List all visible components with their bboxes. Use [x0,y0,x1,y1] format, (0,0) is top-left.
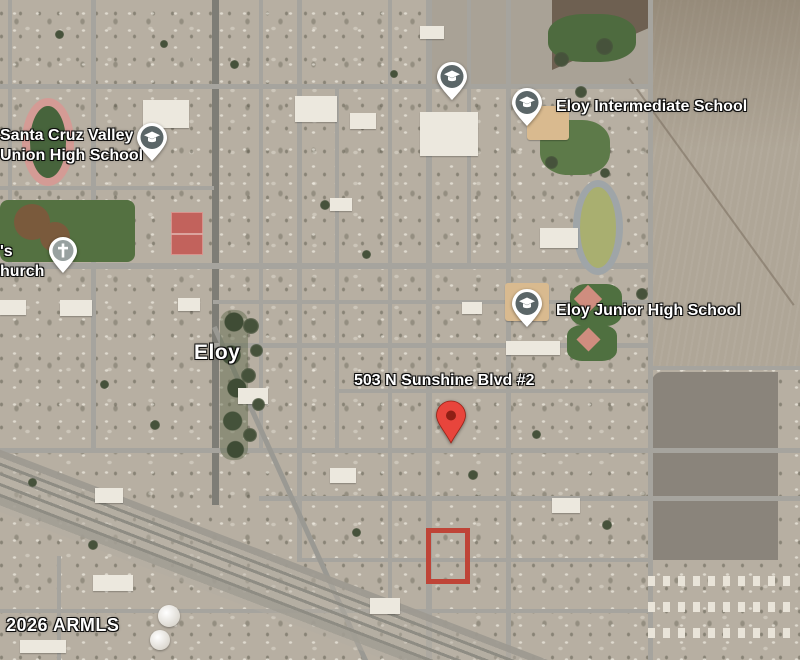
trailer-row [648,576,794,586]
tree [230,60,239,69]
building [420,112,478,156]
tree [602,520,612,530]
church-pin-icon[interactable] [48,236,78,274]
building [178,298,200,311]
tree [55,30,64,39]
building [350,113,376,129]
tree [252,398,265,411]
tree [28,478,37,487]
street [388,0,392,612]
satellite-map[interactable]: Santa Cruz ValleyUnion High School Eloy … [0,0,800,660]
high-school-label-line1: Santa Cruz Valley [0,126,133,146]
street [0,448,800,453]
street [0,263,652,269]
tree [545,156,558,169]
high-school-label-line2: Union High School [0,146,143,166]
trailer-row [648,602,794,612]
building [506,341,560,355]
street [297,558,652,562]
tree [362,250,371,259]
tree [390,70,398,78]
tree [88,540,98,550]
school-pin-icon[interactable] [511,288,543,328]
building [93,575,133,591]
junior-high-school-label: Eloy Junior High School [556,301,741,321]
building [60,300,92,316]
red-roof-apartments [426,528,470,584]
intermediate-school-label: Eloy Intermediate School [556,97,747,117]
trailer-row [648,628,794,638]
tree [241,368,256,383]
plowed-field-shading [652,0,800,150]
main-street [212,0,219,505]
tree [352,528,361,537]
building [420,26,444,39]
tree [160,40,168,48]
tree [554,52,569,67]
building [330,198,352,211]
building [540,228,578,248]
trailer-park [642,566,800,660]
church-label-line2: hurch [0,262,44,282]
tree [600,168,610,178]
building [330,468,356,483]
street [259,496,800,501]
school-pin-icon[interactable] [436,61,468,101]
address-marker-icon[interactable] [436,400,466,444]
building [0,300,26,315]
water-tank [150,630,170,650]
tree [250,344,263,357]
farm-field-bottomright [652,372,778,560]
tree [243,318,259,334]
address-label: 503 N Sunshine Blvd #2 [354,371,535,391]
street [0,84,652,89]
attribution-watermark: 2026 ARMLS [6,615,119,637]
tree [100,380,109,389]
building [295,96,337,122]
farm-road [650,366,800,370]
water-tank [158,605,180,627]
tree [636,288,648,300]
tree [150,420,160,430]
school-pin-icon[interactable] [511,87,543,127]
town-label: Eloy [194,340,240,366]
street [0,186,214,190]
building [462,302,482,314]
tree [320,200,330,210]
court-line [171,233,203,235]
building [552,498,580,513]
tree [468,470,478,480]
building [370,598,400,614]
running-track [573,180,623,275]
building [95,488,123,503]
tree [532,430,541,439]
building [20,640,66,653]
street [259,0,263,452]
tree [243,428,257,442]
school-pin-icon[interactable] [136,122,168,162]
church-label-line1: 's [0,242,13,262]
tree [596,38,613,55]
